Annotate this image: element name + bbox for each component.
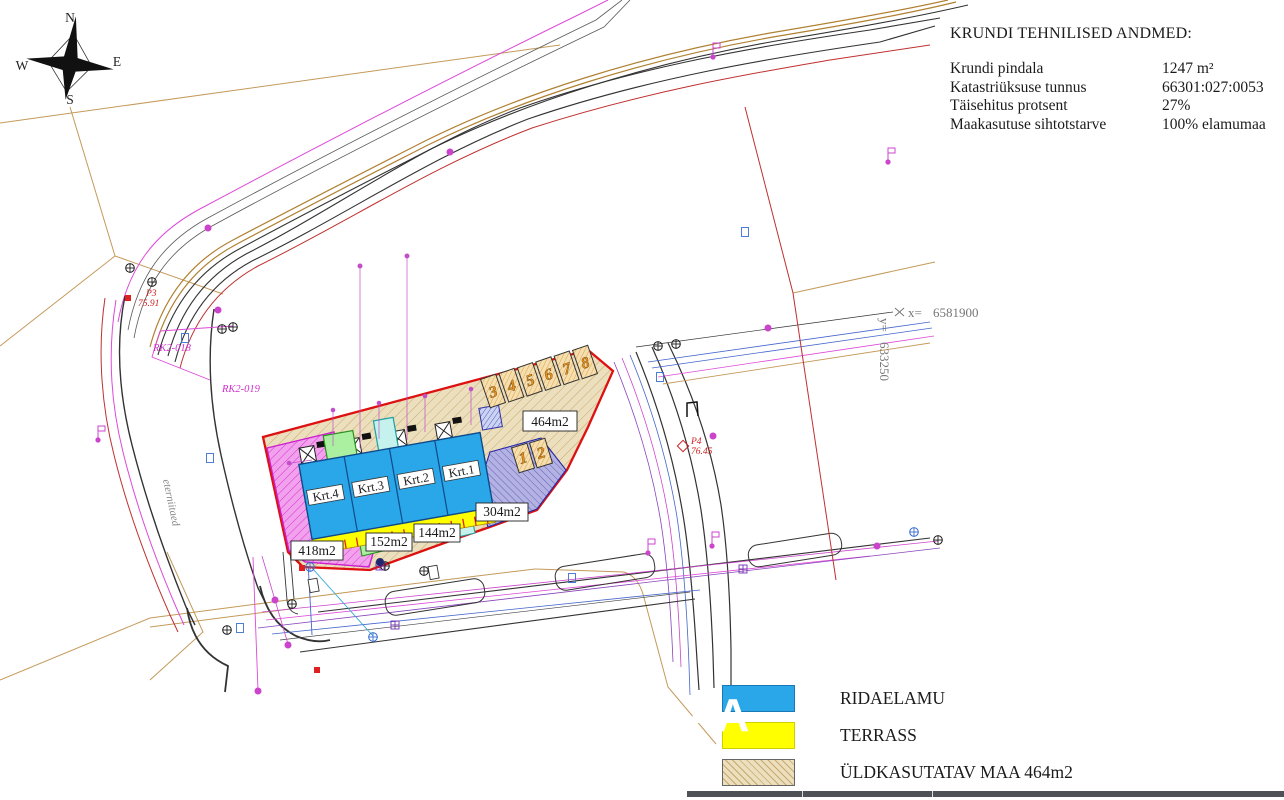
tech-row-label: Maakasutuse sihtotstarve — [950, 116, 1162, 135]
site-plan-page: Krt.4 Krt.3 Krt.2 Krt.1 3 4 5 6 7 8 1 2 … — [0, 0, 1284, 800]
area-label-464: 464m2 — [531, 414, 569, 429]
coord-x-label: x= — [908, 305, 922, 320]
compass-north: N — [65, 10, 75, 25]
tech-row-value: 100% elamumaa — [1162, 116, 1266, 135]
point-p3-label: P3 — [145, 289, 157, 299]
tech-row: Krundi pindala1247 m² — [950, 60, 1284, 79]
tech-row-label: Krundi pindala — [950, 60, 1162, 79]
mark-rk2-018: RK2-018 — [152, 343, 192, 354]
technical-data-heading: KRUNDI TEHNILISED ANDMED: — [950, 25, 1284, 43]
tech-row-label: Katastriüksuse tunnus — [950, 79, 1162, 98]
tech-row: Täisehitus protsent27% — [950, 97, 1284, 116]
compass-south: S — [66, 92, 74, 107]
watermark: AA — [686, 688, 746, 742]
legend-label: RIDAELAMU — [840, 688, 945, 709]
branch-road-south — [614, 343, 731, 695]
technical-data-block: KRUNDI TEHNILISED ANDMED: Krundi pindala… — [950, 25, 1284, 134]
legend-label: TERRASS — [840, 725, 917, 746]
compass-west: W — [16, 58, 29, 73]
legend-swatch-tan-hatch — [722, 759, 795, 786]
point-p3-elev: 75.91 — [138, 299, 159, 309]
legend-item-ridaelamu: RIDAELAMU — [722, 684, 1073, 712]
tech-row: Maakasutuse sihtotstarve100% elamumaa — [950, 116, 1284, 135]
mark-rk2-019: RK2-019 — [221, 384, 261, 395]
tech-row: Katastriüksuse tunnus66301:027:0053 — [950, 79, 1284, 98]
area-label-304: 304m2 — [483, 504, 521, 519]
road-name-label: eterniitaed — [160, 478, 182, 528]
coord-y-value: 633250 — [877, 342, 892, 381]
area-label-418: 418m2 — [298, 543, 336, 558]
area-label-152: 152m2 — [370, 534, 408, 549]
coord-y-label: y= — [877, 318, 892, 332]
tech-row-label: Täisehitus protsent — [950, 97, 1162, 116]
tech-row-value: 1247 m² — [1162, 60, 1214, 79]
coord-x-value: 6581900 — [933, 305, 979, 320]
legend: RIDAELAMU TERRASS ÜLDKASUTATAV MAA 464m2 — [722, 684, 1073, 795]
legend-item-terrass: TERRASS — [722, 721, 1073, 749]
area-label-144: 144m2 — [418, 525, 456, 540]
bottom-table-edge — [687, 791, 1284, 797]
legend-label: ÜLDKASUTATAV MAA 464m2 — [840, 762, 1073, 783]
main-road-top — [118, 0, 968, 368]
compass-east: E — [113, 54, 121, 69]
point-p4-elev: 76.45 — [691, 447, 713, 457]
legend-item-uldkasutatav: ÜLDKASUTATAV MAA 464m2 — [722, 758, 1073, 786]
point-p4-label: P4 — [690, 437, 702, 447]
tech-row-value: 27% — [1162, 97, 1190, 116]
compass-rose: N S W E — [16, 10, 122, 107]
tech-row-value: 66301:027:0053 — [1162, 79, 1264, 98]
